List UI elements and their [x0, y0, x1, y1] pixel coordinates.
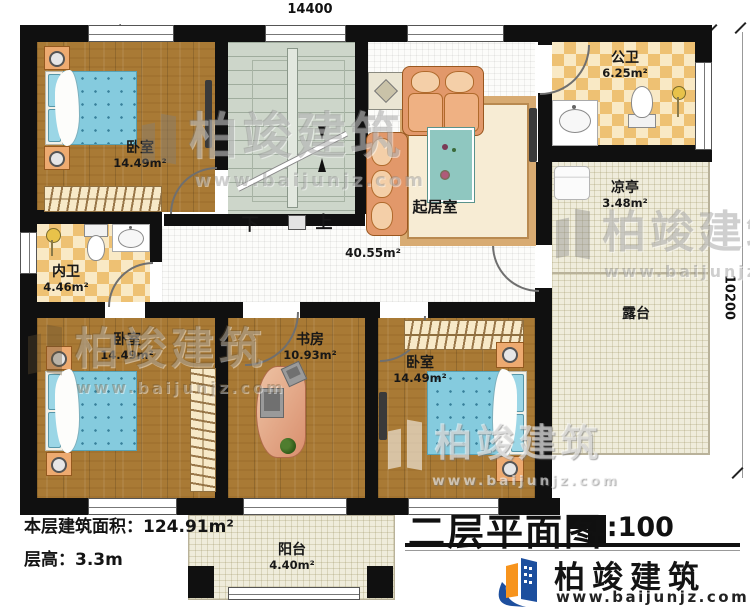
wall-bedroom-terrace: [535, 318, 552, 498]
label-bedroom-bottom-left: 卧室 14.49m²: [82, 332, 172, 363]
stairs-inner-outline: [252, 60, 345, 202]
balcony-corner-left: [188, 566, 214, 598]
plan-scale: 1:100: [588, 512, 674, 543]
label-bedroom-bottom-right: 卧室 14.49m²: [375, 355, 465, 386]
plan-title: 二层平面图: [408, 502, 603, 556]
wall-right-top: [695, 25, 712, 62]
pavilion-terrace-divider: [552, 272, 710, 274]
hallway-floor: [162, 226, 372, 302]
wall-bathroom-public-left: [538, 25, 552, 45]
company-logo-icon: [492, 552, 544, 608]
wall-bathroom-public-bottom: [538, 145, 712, 162]
wardrobe: [44, 186, 162, 212]
balcony-corner-right: [367, 566, 393, 598]
nightstand: [44, 46, 70, 70]
window: [695, 62, 712, 150]
title-underline: [405, 543, 740, 547]
wall-bathroom-public-left: [538, 93, 552, 145]
stairs-up-label: 上: [312, 213, 336, 233]
dimension-right: 10200: [722, 275, 737, 321]
toilet-bowl: [87, 235, 105, 261]
wall-bathroom-inner-bottom: [20, 302, 105, 318]
label-bathroom-inner: 内卫 4.46m²: [30, 264, 102, 295]
label-living-area: 40.55m²: [333, 246, 413, 260]
label-terrace: 露台: [600, 306, 672, 323]
corner-table: [368, 72, 404, 110]
nightstand: [496, 342, 524, 368]
label-bedroom-top-left: 卧室 14.49m²: [95, 140, 185, 171]
stairs-rail: [287, 48, 298, 208]
nightstand: [496, 456, 524, 482]
wall-bottom: [345, 498, 408, 515]
bed: [44, 370, 138, 452]
shower-head: [46, 228, 61, 243]
wall-bedroom-study: [215, 318, 228, 498]
stairs-down-label: 下: [238, 215, 262, 235]
company-logo-url: www.baijunjz.com: [556, 588, 749, 606]
floor-area-text: 本层建筑面积：124.91m²: [24, 512, 234, 537]
computer-monitor: [260, 388, 284, 418]
drain-stem: [677, 97, 679, 117]
wardrobe: [190, 368, 216, 492]
company-logo: 柏竣建筑 www.baijunjz.com: [492, 552, 742, 608]
stairs-arrow-icon: [318, 158, 326, 172]
label-bathroom-public: 公卫 6.25m²: [585, 50, 665, 81]
wall-hallway-bottom: [145, 302, 243, 318]
bed: [44, 70, 138, 146]
toilet-bowl: [631, 86, 653, 118]
wall-study-bedroom: [365, 318, 378, 498]
shower-hose: [51, 240, 53, 256]
wall-living-terrace: [535, 288, 552, 318]
wall-stairs-left: [215, 25, 228, 170]
coffee-table: [428, 128, 474, 202]
nightstand: [44, 146, 70, 170]
sofa-top: [402, 66, 484, 136]
window: [88, 25, 174, 42]
label-living: 起居室: [395, 198, 475, 216]
balcony-sliding-door: [243, 498, 347, 515]
floor-plan-canvas: 14400 10200: [0, 0, 750, 614]
sink: [552, 100, 598, 146]
terrace-edge-right: [708, 162, 710, 455]
label-pavilion: 凉亭 3.48m²: [585, 180, 665, 211]
terrace-edge-bottom: [552, 453, 710, 455]
tv: [379, 392, 387, 440]
sink: [112, 224, 150, 252]
wall-living-terrace: [535, 162, 552, 245]
stairs-arrow-icon: [318, 126, 326, 140]
label-study: 书房 10.93m²: [265, 332, 355, 363]
tv: [205, 80, 212, 148]
dimension-top: 14400: [278, 2, 342, 17]
wall-bathroom-inner-right: [150, 210, 162, 262]
label-balcony: 阳台 4.40m²: [248, 542, 336, 573]
balcony-window: [228, 587, 360, 600]
wall-hallway-bottom: [300, 302, 380, 318]
dimension-line-right: [742, 32, 743, 478]
dimension-tick: [734, 22, 746, 34]
nightstand: [46, 452, 72, 476]
floor-height-text: 层高：3.3m: [24, 545, 123, 570]
nightstand: [46, 346, 72, 370]
tv: [529, 108, 537, 162]
sofa-left: [366, 132, 408, 236]
wall-bedroom-bathroom: [20, 210, 160, 224]
wall-panel: [288, 215, 306, 230]
wall-hallway-bottom: [428, 302, 535, 318]
title-underline-thin: [405, 550, 740, 551]
floor-drain: [672, 86, 686, 100]
window: [407, 25, 504, 42]
window: [265, 25, 346, 42]
plant: [280, 438, 296, 454]
